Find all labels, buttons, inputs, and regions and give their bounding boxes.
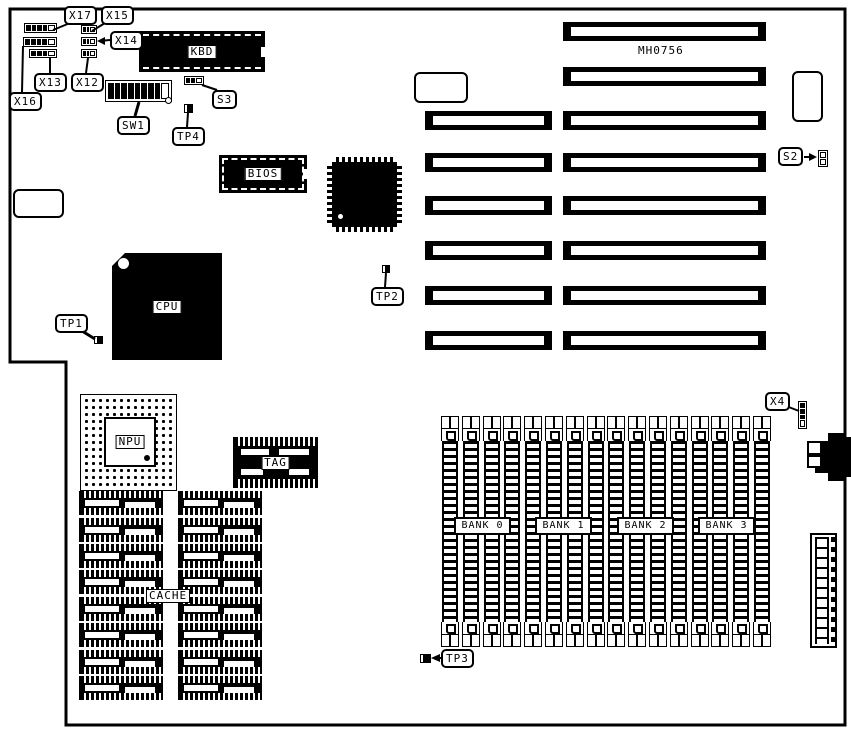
cache-chip (79, 650, 163, 674)
cache-chip (178, 518, 262, 542)
npu-socket-cavity: NPU (104, 417, 156, 467)
callout-x15: X15 (101, 6, 134, 25)
expansion-slot-short (425, 153, 552, 172)
simm-socket (753, 416, 771, 647)
header-connector-x12 (81, 49, 97, 58)
callout-s2: S2 (778, 147, 803, 166)
edge-strip-connector (810, 533, 837, 648)
component-outline (13, 189, 64, 218)
callout-x4: X4 (765, 392, 790, 411)
expansion-slot (563, 22, 766, 41)
callout-tp2: TP2 (371, 287, 404, 306)
sw1-index-dot (165, 97, 172, 104)
callout-tp1: TP1 (55, 314, 88, 333)
cpu-pin1-dot (118, 258, 129, 269)
cache-chip (79, 518, 163, 542)
kbd-pin1-notch (261, 47, 266, 57)
callout-tp3: TP3 (441, 649, 474, 668)
cache-chip (79, 676, 163, 700)
callout-x13: X13 (34, 73, 67, 92)
callout-x14: X14 (110, 31, 143, 50)
dip-switch-sw1 (105, 80, 172, 102)
cpu-chip: CPU (112, 253, 222, 360)
expansion-slot (563, 331, 766, 350)
expansion-slot-short (425, 241, 552, 260)
callout-x12: X12 (71, 73, 104, 92)
cache-chip (178, 570, 262, 594)
bios-chip-label: BIOS (245, 167, 282, 181)
header-connector-s3 (184, 76, 204, 85)
power-plug (808, 456, 821, 467)
qfp-pins-right (397, 166, 402, 223)
header-connector-x16 (23, 37, 57, 47)
cache-chip (178, 597, 262, 621)
kbd-chip: KBD (139, 31, 265, 72)
bios-chip: BIOS (219, 155, 307, 193)
cache-chip (178, 623, 262, 647)
expansion-slot (563, 286, 766, 305)
cache-chip (178, 544, 262, 568)
npu-chip-label: NPU (116, 435, 145, 449)
qfp-pins-bottom (336, 227, 394, 232)
header-connector-x15 (81, 25, 97, 34)
bank0-label: BANK 0 (454, 517, 511, 535)
motherboard-diagram: MH0756 KBD BIOS (0, 0, 851, 731)
kbd-chip-label: KBD (188, 45, 217, 59)
expansion-slot-short (425, 196, 552, 215)
callout-sw1: SW1 (117, 116, 150, 135)
qfp-pin1-dot (338, 214, 343, 219)
npu-pin1-dot (144, 455, 150, 461)
testpoint-pad-tp4 (184, 104, 193, 113)
callout-x17: X17 (64, 6, 97, 25)
power-plug (808, 442, 821, 454)
bank1-label: BANK 1 (535, 517, 592, 535)
expansion-slot-short (425, 331, 552, 350)
tag-chip: TAG (233, 437, 318, 488)
callout-tp4: TP4 (172, 127, 205, 146)
header-connector-x14 (81, 37, 97, 46)
header-connector-x17 (24, 23, 57, 33)
cache-area-label: CACHE (146, 589, 190, 603)
expansion-slot (563, 111, 766, 130)
testpoint-pad-tp3 (420, 654, 431, 663)
header-connector-x13 (29, 49, 57, 58)
power-connector (815, 433, 851, 481)
component-outline (792, 71, 823, 122)
expansion-slot (563, 241, 766, 260)
cache-chip (79, 491, 163, 515)
bios-pin1-notch (303, 169, 308, 179)
bank3-label: BANK 3 (698, 517, 755, 535)
cache-chip (178, 650, 262, 674)
cache-chip (178, 491, 262, 515)
cache-chip (79, 623, 163, 647)
board-part-number: MH0756 (638, 44, 684, 57)
expansion-slot (563, 196, 766, 215)
callout-x16: X16 (9, 92, 42, 111)
header-connector-s2 (818, 150, 828, 167)
cache-chip (79, 544, 163, 568)
expansion-slot-short (425, 111, 552, 130)
testpoint-pad-tp1 (94, 336, 103, 344)
cpu-chip-label: CPU (153, 300, 182, 314)
tag-chip-label: TAG (261, 456, 290, 470)
bank2-label: BANK 2 (617, 517, 674, 535)
component-outline (414, 72, 468, 103)
expansion-slot (563, 153, 766, 172)
expansion-slot-short (425, 286, 552, 305)
expansion-slot (563, 67, 766, 86)
header-connector-x4 (798, 401, 807, 429)
qfp-body (332, 162, 397, 227)
cache-chip (178, 676, 262, 700)
testpoint-pad-tp2 (382, 265, 390, 273)
callout-s3: S3 (212, 90, 237, 109)
npu-socket: NPU (80, 394, 177, 491)
